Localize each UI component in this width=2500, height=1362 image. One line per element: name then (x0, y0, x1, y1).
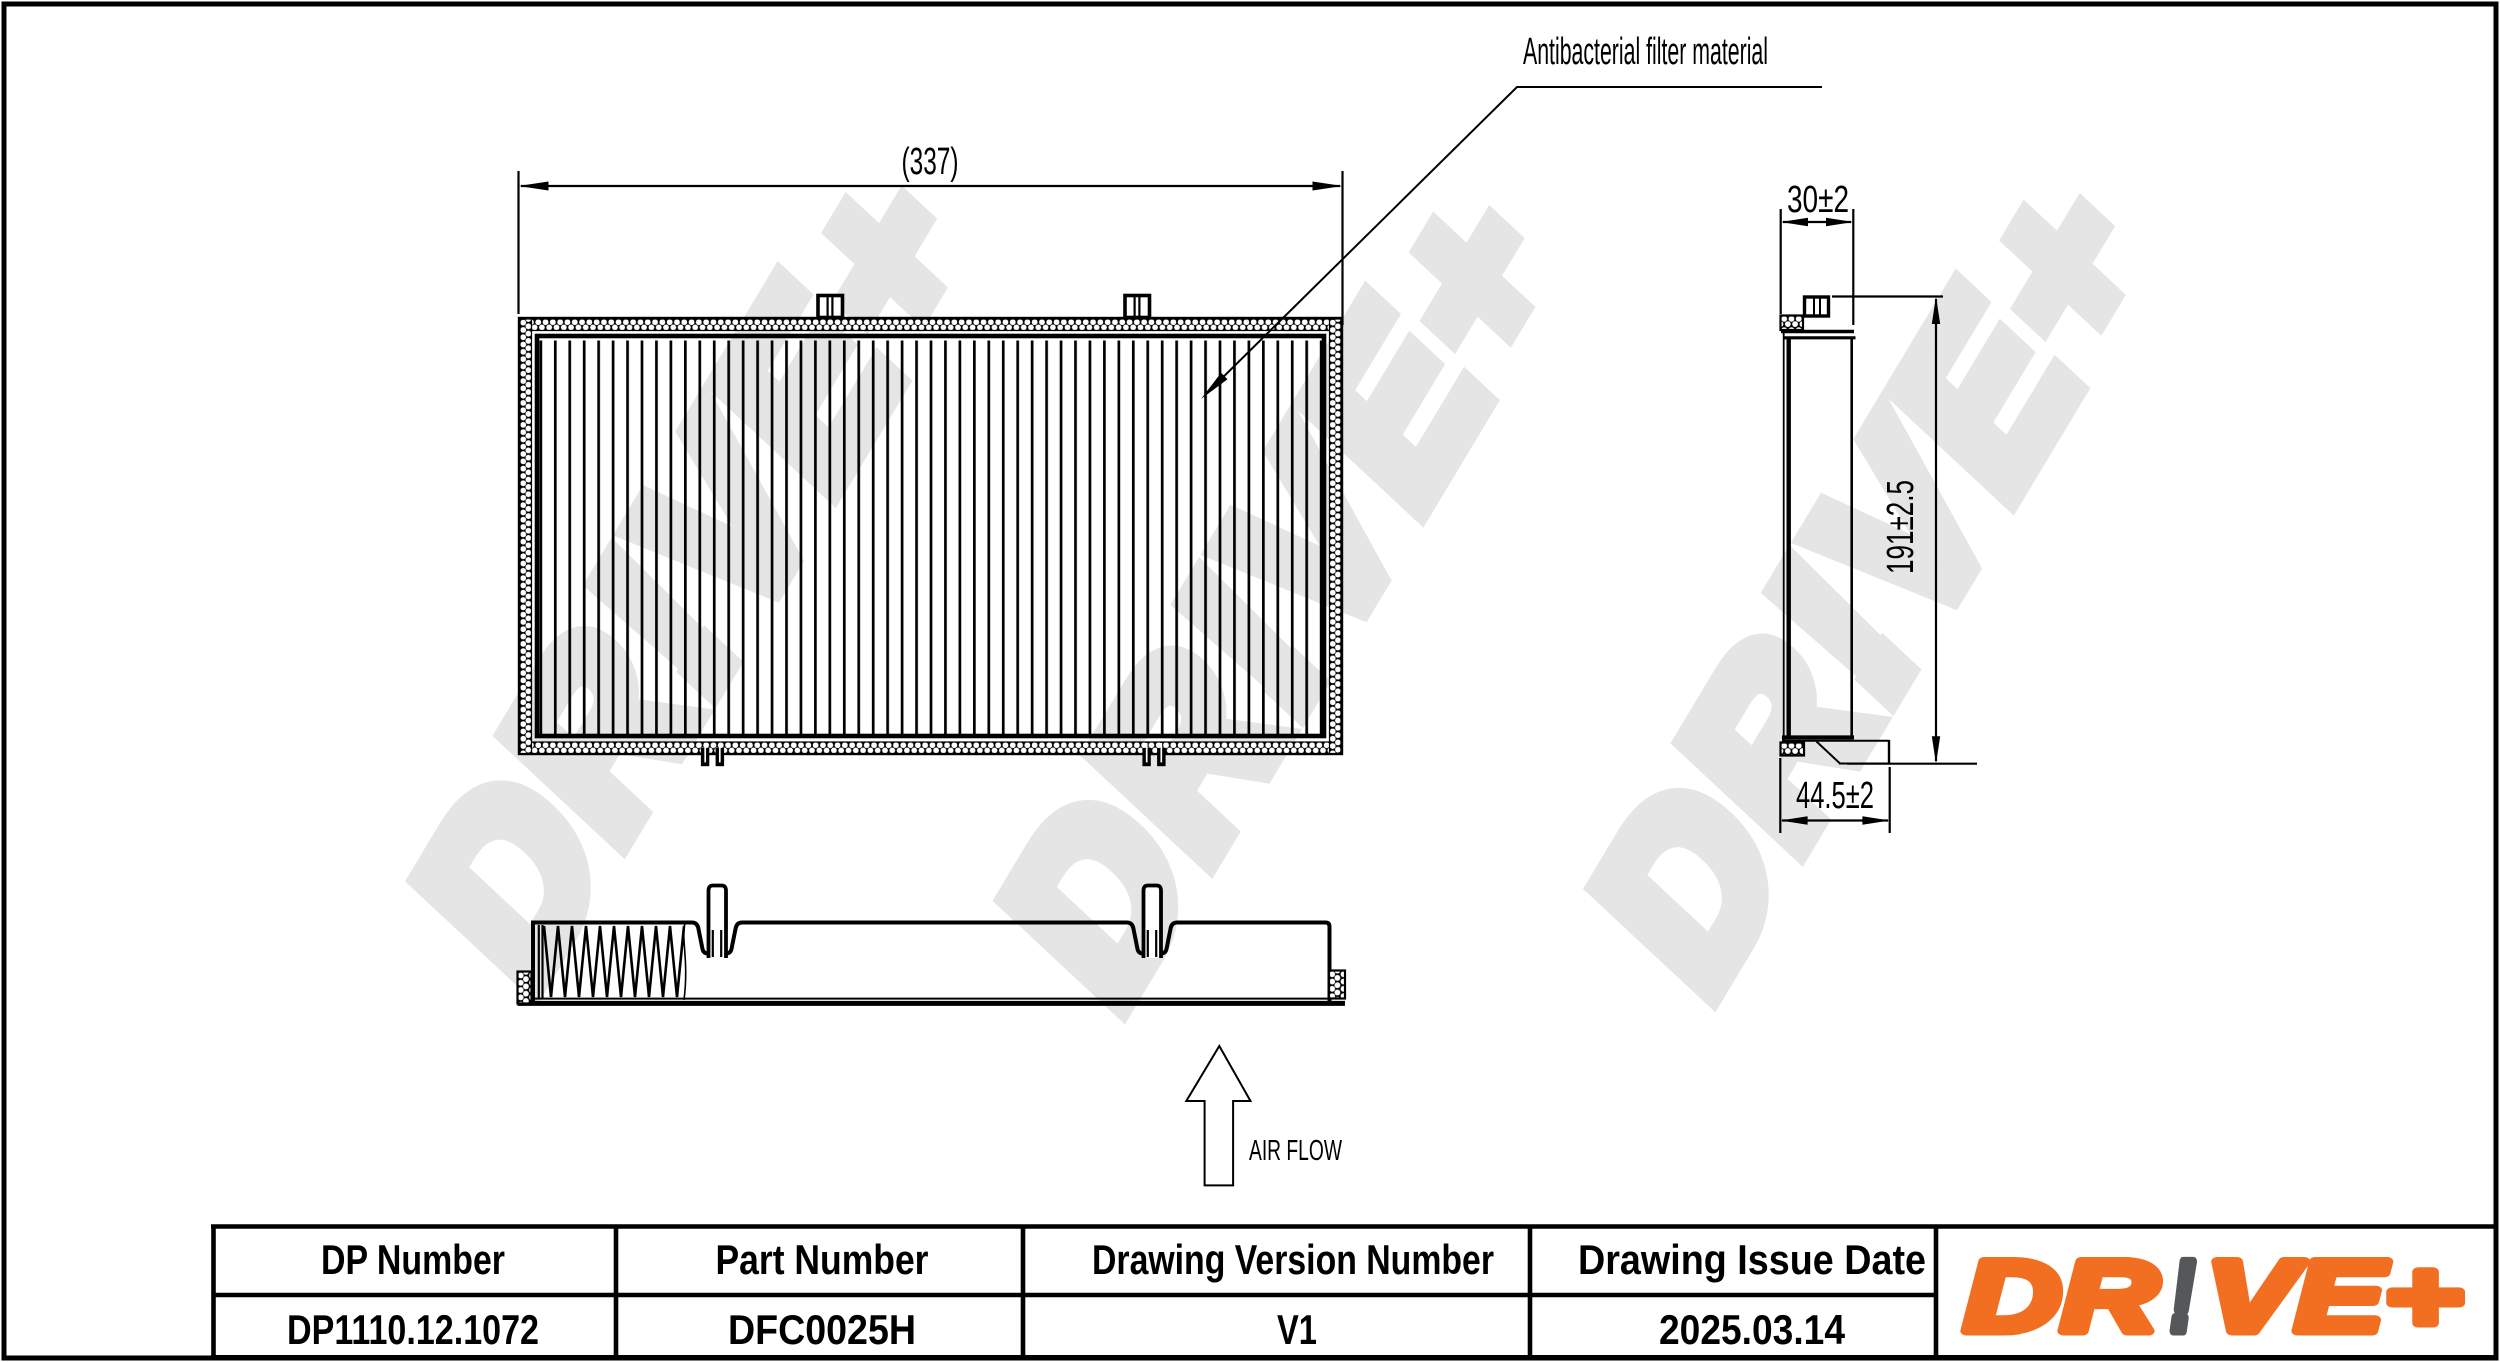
svg-text:VE+: VE+ (2206, 1241, 2462, 1353)
svg-text:2025.03.14: 2025.03.14 (1659, 1306, 1846, 1353)
svg-text:Part Number: Part Number (716, 1236, 929, 1283)
svg-text:(337): (337) (902, 141, 959, 183)
svg-text:AIR FLOW: AIR FLOW (1249, 1135, 1342, 1167)
svg-text:30±2: 30±2 (1787, 179, 1849, 221)
svg-text:44.5±2: 44.5±2 (1796, 775, 1874, 817)
svg-text:Antibacterial filter material: Antibacterial filter material (1523, 31, 1768, 73)
svg-text:DFC0025H: DFC0025H (728, 1306, 916, 1353)
svg-text:V1: V1 (1277, 1306, 1317, 1353)
svg-text:Drawing Issue Date: Drawing Issue Date (1578, 1236, 1926, 1283)
svg-text:Drawing Version Number: Drawing Version Number (1092, 1236, 1494, 1283)
svg-text:DP1110.12.1072: DP1110.12.1072 (287, 1306, 539, 1353)
svg-text:191±2.5: 191±2.5 (1880, 480, 1922, 574)
svg-text:DR: DR (1964, 1241, 2158, 1353)
svg-text:!: ! (2170, 1241, 2195, 1353)
svg-text:DP Number: DP Number (321, 1236, 505, 1283)
